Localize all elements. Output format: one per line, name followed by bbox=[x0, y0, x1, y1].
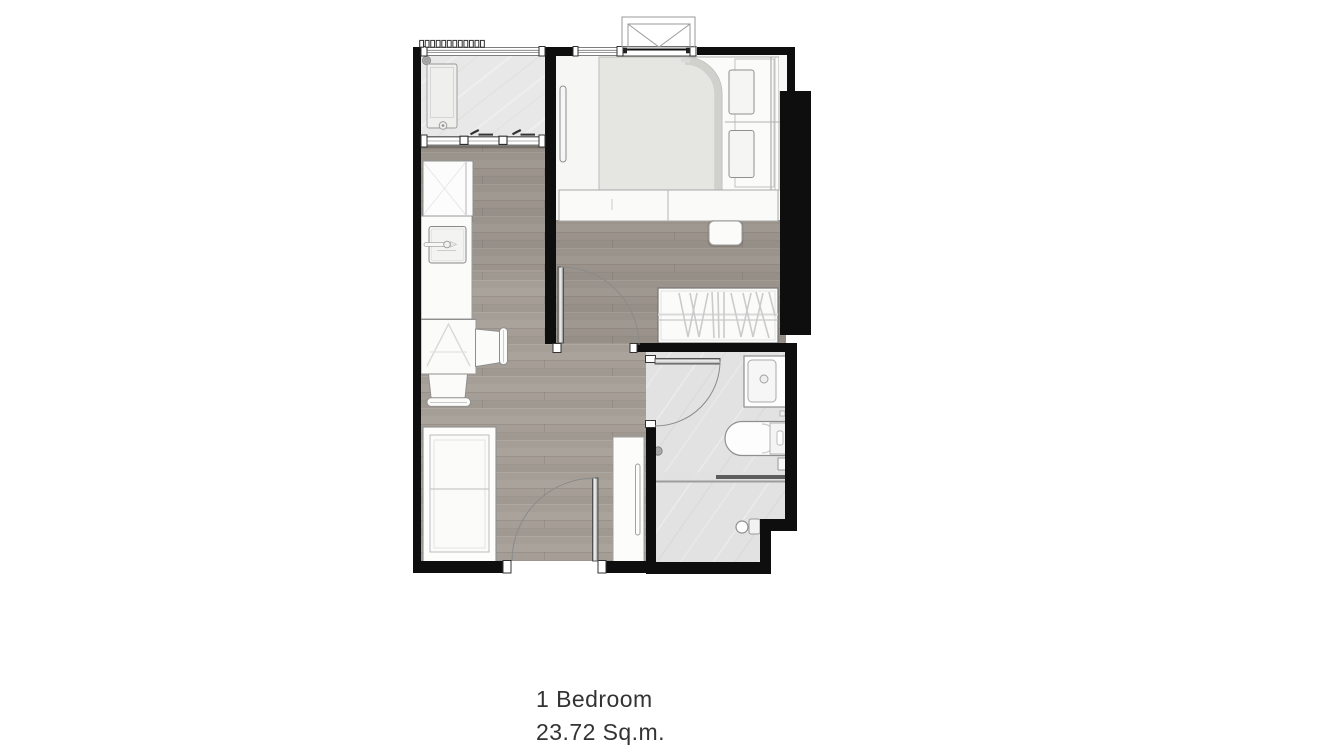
svg-text:1 Bedroom: 1 Bedroom bbox=[536, 686, 653, 712]
svg-text:23.72 Sq.m.: 23.72 Sq.m. bbox=[536, 719, 665, 745]
